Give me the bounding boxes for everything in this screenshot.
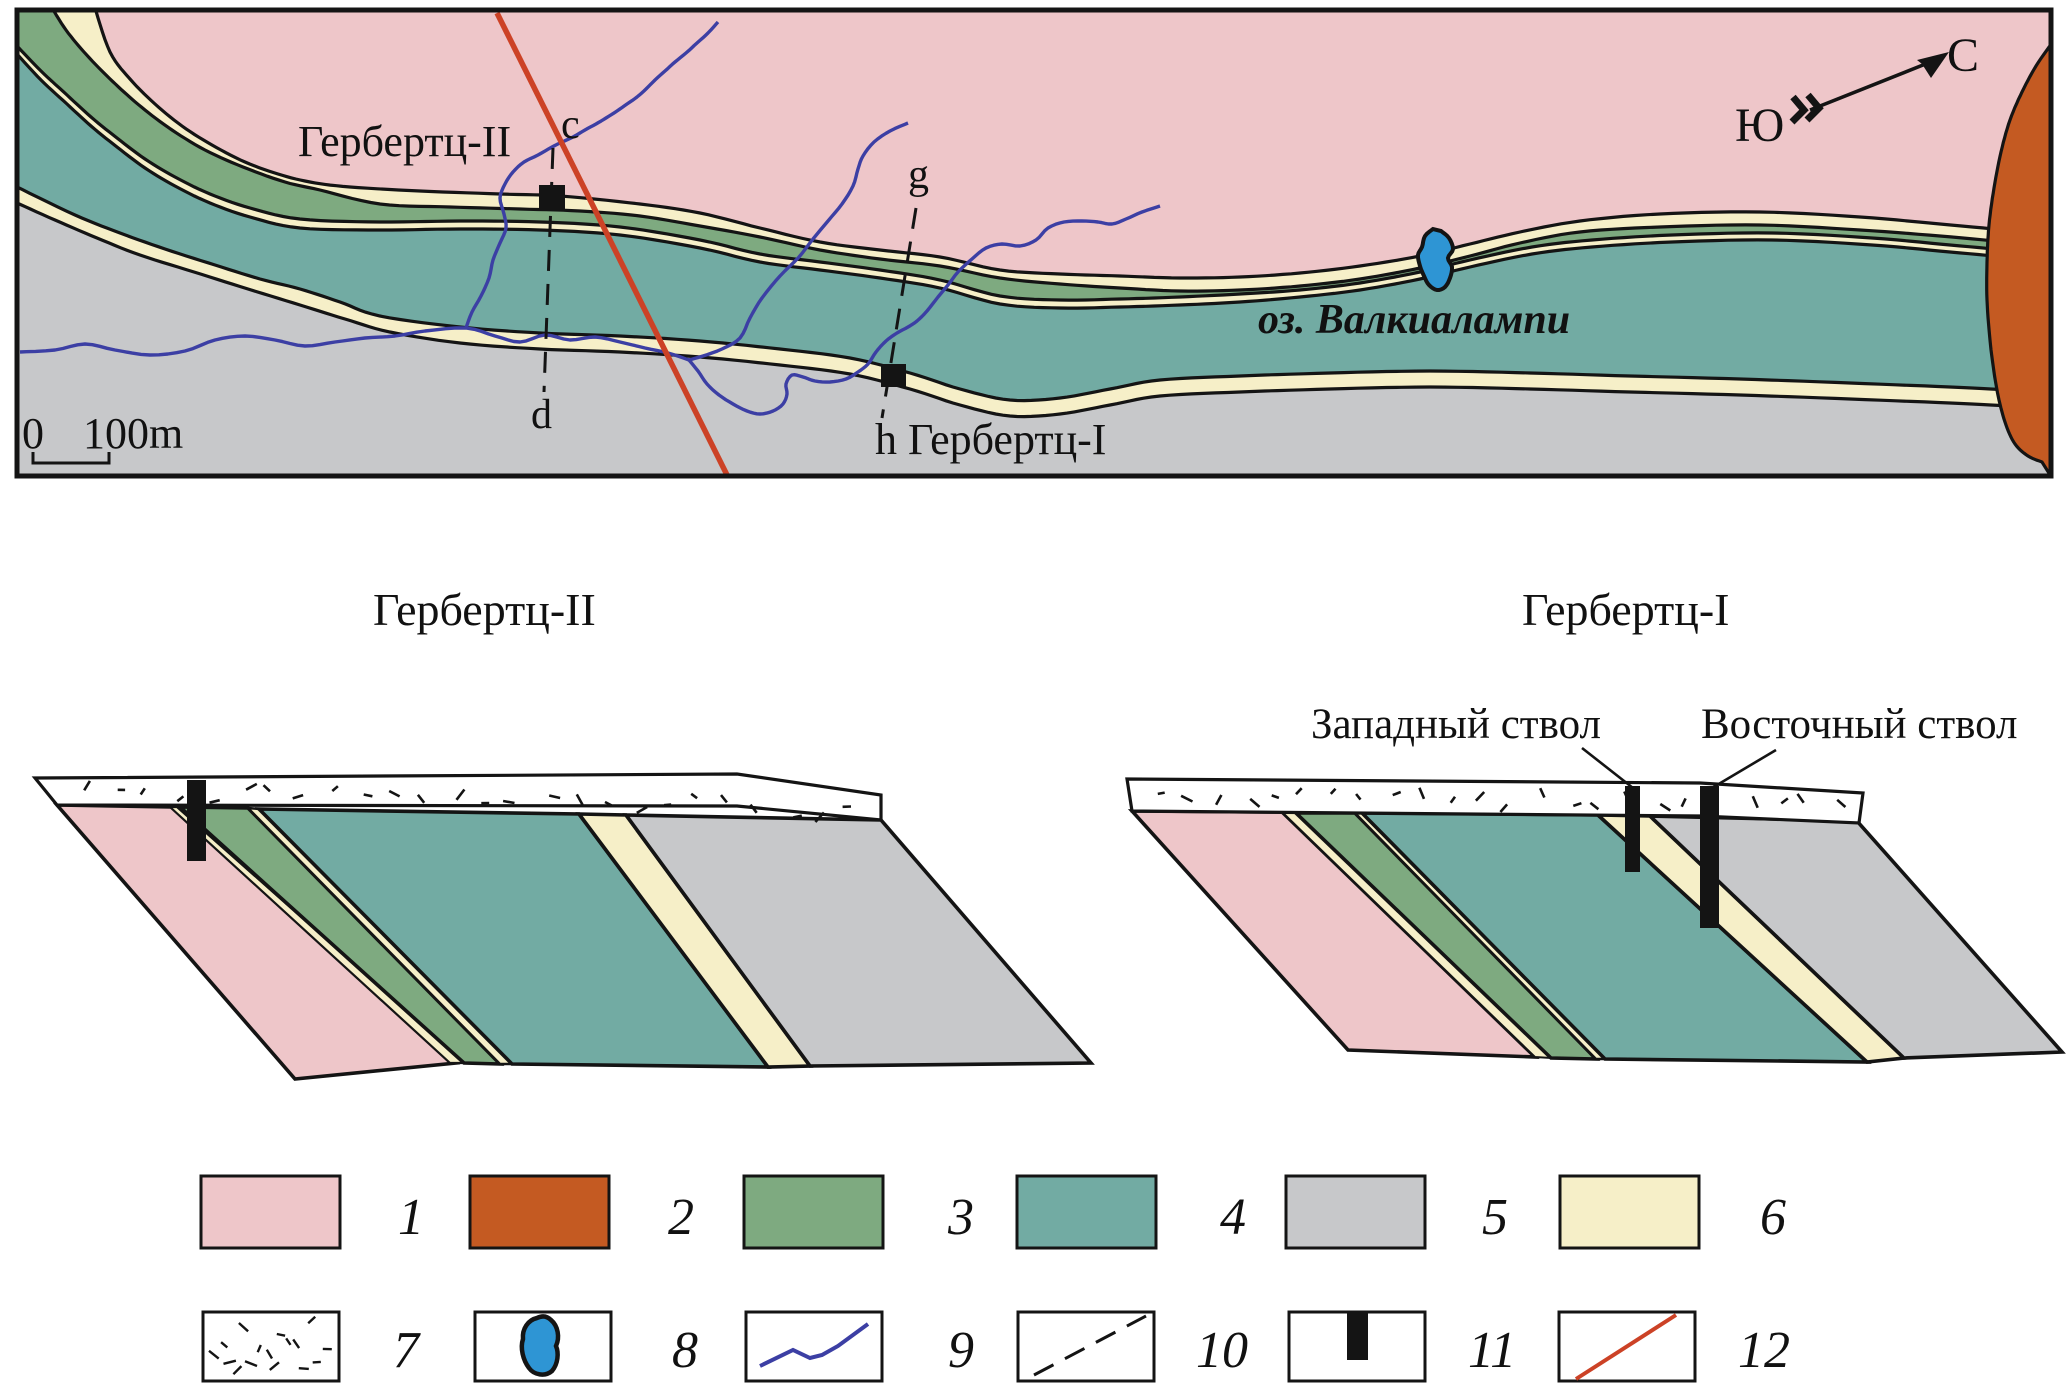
svg-text:d: d (531, 392, 552, 438)
svg-text:Ю: Ю (1735, 99, 1784, 152)
svg-text:12: 12 (1738, 1322, 1790, 1379)
svg-text:4: 4 (1220, 1189, 1246, 1246)
svg-text:1: 1 (398, 1189, 424, 1246)
svg-text:2: 2 (668, 1189, 694, 1246)
svg-text:3: 3 (947, 1189, 974, 1246)
svg-text:Западный ствол: Западный ствол (1311, 701, 1601, 748)
svg-text:Восточный ствол: Восточный ствол (1701, 701, 2018, 748)
svg-text:С: С (1947, 29, 1979, 82)
svg-text:100m: 100m (83, 409, 183, 458)
svg-text:оз. Валкиалампи: оз. Валкиалампи (1258, 297, 1570, 343)
svg-text:0: 0 (22, 409, 44, 458)
svg-text:g: g (908, 152, 929, 198)
svg-text:c: c (561, 102, 580, 148)
svg-text:5: 5 (1482, 1189, 1508, 1246)
svg-text:Гербертц-II: Гербертц-II (373, 584, 596, 635)
svg-text:9: 9 (948, 1322, 974, 1379)
svg-text:11: 11 (1468, 1322, 1516, 1379)
svg-text:Гербертц-II: Гербертц-II (298, 117, 511, 166)
svg-text:6: 6 (1760, 1189, 1786, 1246)
svg-text:h Гербертц-I: h Гербертц-I (875, 415, 1106, 464)
svg-text:8: 8 (672, 1322, 698, 1379)
svg-text:7: 7 (393, 1322, 421, 1379)
svg-text:10: 10 (1196, 1322, 1248, 1379)
svg-text:Гербертц-I: Гербертц-I (1522, 584, 1729, 635)
